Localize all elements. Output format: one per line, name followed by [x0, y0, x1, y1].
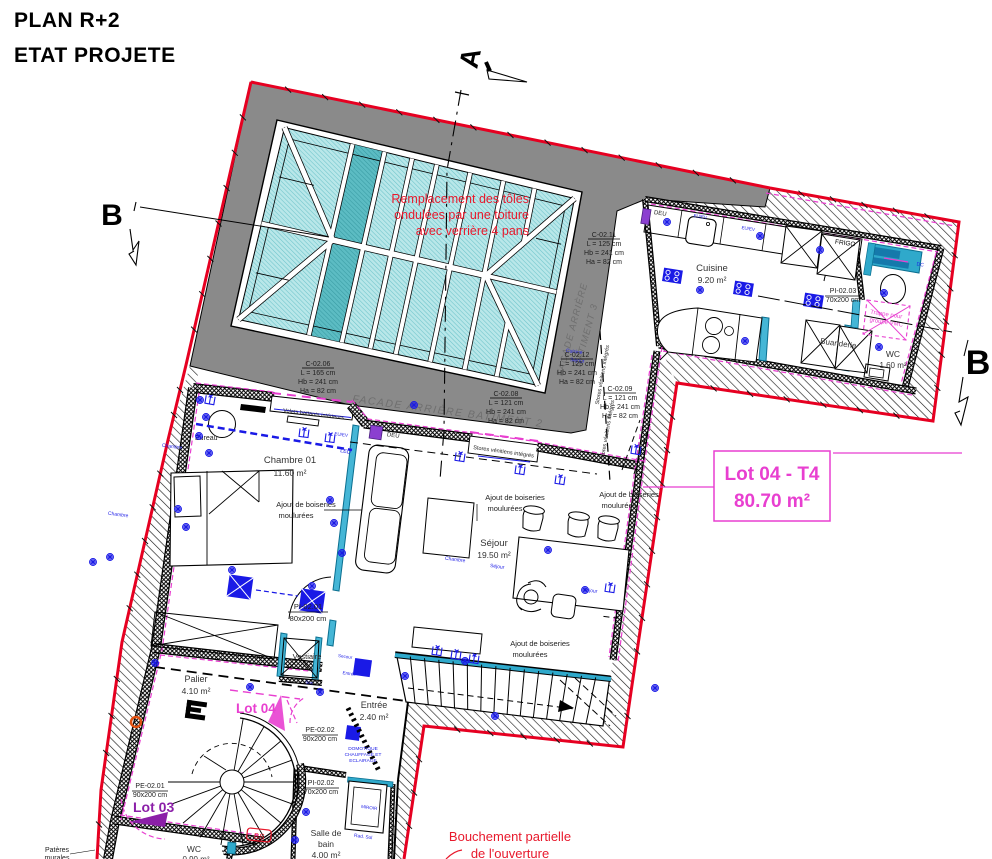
svg-text:90x200 cm: 90x200 cm — [133, 792, 167, 799]
svg-text:11.60 m²: 11.60 m² — [274, 468, 307, 478]
svg-text:Hb = 241 cm: Hb = 241 cm — [557, 370, 597, 377]
svg-text:PI-02.02: PI-02.02 — [308, 780, 335, 787]
svg-text:Hb = 241 cm: Hb = 241 cm — [486, 409, 526, 416]
svg-text:L = 121 cm: L = 121 cm — [603, 395, 638, 402]
svg-text:Vestiaire: Vestiaire — [293, 652, 322, 661]
svg-text:Palier: Palier — [184, 674, 207, 684]
svg-text:Ha = 82 cm: Ha = 82 cm — [586, 259, 622, 266]
svg-text:9.20 m²: 9.20 m² — [698, 275, 727, 285]
svg-text:Remplacement des tôles: Remplacement des tôles — [391, 192, 529, 206]
svg-text:B: B — [101, 199, 123, 232]
svg-text:ETAT PROJETE: ETAT PROJETE — [14, 44, 176, 67]
svg-text:Lot 04: Lot 04 — [236, 701, 276, 716]
svg-text:WC: WC — [187, 844, 201, 854]
svg-text:BS: BS — [253, 831, 265, 841]
svg-text:Ha = 82 cm: Ha = 82 cm — [488, 418, 524, 425]
svg-text:ondulées par une toiture: ondulées par une toiture — [394, 208, 529, 222]
svg-text:2.40 m²: 2.40 m² — [360, 712, 389, 722]
svg-text:PI-02.03: PI-02.03 — [830, 288, 857, 295]
svg-text:C-02.12: C-02.12 — [565, 352, 590, 359]
svg-text:Ajout de boiseries: Ajout de boiseries — [599, 490, 659, 499]
svg-text:ECLAIRAGE: ECLAIRAGE — [349, 758, 376, 764]
svg-text:C-02.06: C-02.06 — [306, 361, 331, 368]
svg-text:Séjour: Séjour — [480, 538, 507, 549]
svg-text:L = 125 cm: L = 125 cm — [560, 361, 595, 368]
svg-text:PI-02.01: PI-02.01 — [294, 602, 322, 611]
svg-text:Bouchement partielle: Bouchement partielle — [449, 829, 571, 844]
svg-text:moulurées: moulurées — [601, 501, 636, 510]
svg-text:avec verrière 4 pans: avec verrière 4 pans — [416, 224, 529, 238]
svg-text:Cuisine: Cuisine — [696, 263, 728, 274]
svg-text:4.00 m²: 4.00 m² — [312, 850, 341, 859]
svg-text:80x200 cm: 80x200 cm — [290, 614, 327, 623]
svg-text:de l'ouverture: de l'ouverture — [471, 846, 549, 859]
svg-text:moulurées: moulurées — [278, 511, 313, 520]
svg-text:Lot 04 - T4: Lot 04 - T4 — [724, 464, 819, 485]
svg-text:Ha = 82 cm: Ha = 82 cm — [559, 379, 595, 386]
svg-text:Lot 03: Lot 03 — [133, 799, 174, 815]
svg-text:1.60 m²: 1.60 m² — [879, 361, 906, 370]
svg-text:C-02.08: C-02.08 — [494, 391, 519, 398]
svg-text:Hb = 241 cm: Hb = 241 cm — [298, 379, 338, 386]
svg-text:70x200 cm: 70x200 cm — [826, 297, 860, 304]
svg-text:C-02.11: C-02.11 — [592, 232, 616, 239]
svg-text:80.70 m²: 80.70 m² — [734, 491, 810, 512]
svg-text:L = 125 cm: L = 125 cm — [587, 241, 622, 248]
svg-text:0.90 m²: 0.90 m² — [182, 855, 209, 859]
svg-text:WC: WC — [886, 349, 900, 359]
svg-text:L = 121 cm: L = 121 cm — [489, 400, 524, 407]
svg-text:PLAN R+2: PLAN R+2 — [14, 9, 120, 32]
svg-text:Salle de: Salle de — [311, 828, 342, 838]
svg-text:bain: bain — [318, 839, 334, 849]
svg-text:Hb = 241 cm: Hb = 241 cm — [584, 250, 624, 257]
svg-text:19.50 m²: 19.50 m² — [477, 550, 511, 560]
svg-text:90x200 cm: 90x200 cm — [303, 736, 337, 743]
svg-text:Entrée: Entrée — [361, 700, 388, 710]
svg-text:DC: DC — [916, 261, 924, 268]
svg-text:DOMOTIQUE: DOMOTIQUE — [348, 746, 378, 752]
svg-text:moulurées: moulurées — [512, 650, 547, 659]
svg-text:Ajout de boiseries: Ajout de boiseries — [510, 639, 570, 648]
svg-text:Ha = 82 cm: Ha = 82 cm — [300, 388, 336, 395]
svg-text:C-02.09: C-02.09 — [608, 386, 633, 393]
svg-text:murales: murales — [45, 855, 70, 859]
svg-text:Patères: Patères — [45, 847, 70, 854]
svg-text:moulurées: moulurées — [487, 504, 522, 513]
svg-text:70x200 cm: 70x200 cm — [304, 789, 338, 796]
svg-text:Chambre 01: Chambre 01 — [264, 455, 316, 466]
svg-text:PE-02.01: PE-02.01 — [135, 783, 164, 790]
svg-text:B: B — [966, 344, 991, 382]
svg-text:L = 165 cm: L = 165 cm — [301, 370, 336, 377]
svg-text:CHAUFFAGE ET: CHAUFFAGE ET — [345, 752, 382, 758]
svg-text:4.10 m²: 4.10 m² — [182, 686, 211, 696]
svg-text:PE-02.02: PE-02.02 — [305, 727, 334, 734]
svg-text:Ajout de boiseries: Ajout de boiseries — [485, 493, 545, 502]
svg-text:Hb = 241 cm: Hb = 241 cm — [600, 404, 640, 411]
